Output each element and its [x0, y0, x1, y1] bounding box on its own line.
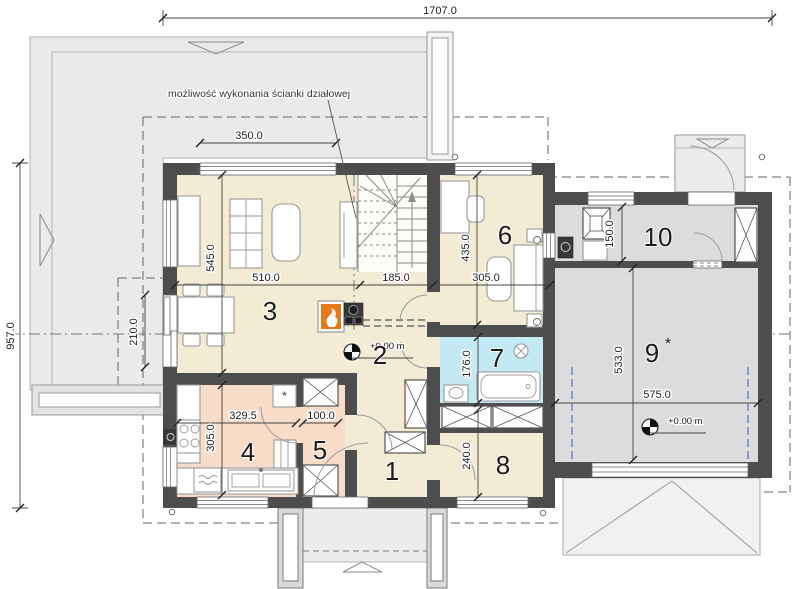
window-living-top [200, 163, 336, 175]
tall-cabinet [274, 440, 296, 468]
room-label-6: 6 [498, 220, 512, 250]
stove-icon [344, 303, 363, 325]
boiler-icon [558, 237, 573, 258]
freezer-symbol: * [282, 389, 287, 403]
window-bedroom-right [543, 233, 555, 258]
entrance-porch [278, 508, 447, 588]
window-bedroom-top [455, 163, 532, 175]
dim-pantry-width: 100.0 [307, 410, 335, 422]
door-gap-utility-garage [693, 261, 722, 268]
terrace-beam [32, 385, 167, 415]
desk-chair [467, 196, 484, 222]
dishwasher-icon [194, 468, 221, 492]
window-room8-bottom [457, 497, 528, 508]
entrance-roof-arrow [343, 562, 382, 572]
window-living-left [163, 200, 177, 267]
dining-chair [207, 334, 224, 346]
dim-living-window: 350.0 [235, 130, 263, 142]
level-text: +0.00 m [668, 416, 703, 427]
entrance-door-opening [312, 497, 368, 508]
door-gap-room8 [427, 445, 440, 480]
socket-icon [534, 319, 541, 326]
dim-room8-depth: 240.0 [461, 442, 473, 470]
floor-plan-drawing: * [0, 0, 800, 589]
wardrobe [405, 380, 427, 428]
kitchen-sink-icon [228, 468, 294, 491]
chimney-shaft [735, 208, 757, 262]
annotation-text: możliwość wykonania ścianki działowej [168, 88, 350, 100]
door-gap-bathroom [427, 337, 440, 367]
terrace-sliding-door [163, 295, 177, 367]
dining-chair [207, 284, 224, 296]
room-label-7: 7 [490, 343, 504, 373]
dining-chair [183, 334, 200, 346]
sofa [230, 199, 262, 268]
dim-bath-depth: 176.0 [461, 350, 473, 378]
dim-total-depth: 957.0 [5, 322, 17, 350]
dim-living-depth: 545.0 [205, 244, 217, 272]
dim-garage-width: 575.0 [643, 389, 671, 401]
dim-hall-width: 185.0 [382, 272, 410, 284]
room-label-2: 2 [373, 340, 387, 370]
garage-door-opening [592, 463, 748, 477]
toilet-icon [514, 344, 528, 358]
bathtub [477, 372, 540, 401]
bed [514, 245, 543, 311]
window-kitchen-left [163, 447, 177, 487]
pantry-shelf [303, 378, 338, 406]
room-label-9: 9 [645, 338, 659, 368]
window-kitchen-bottom [197, 497, 268, 508]
dim-garage-depth: 533.0 [613, 346, 625, 374]
pantry-shelf [303, 465, 338, 496]
room-label-10: 10 [644, 222, 673, 252]
dim-kitchen-width: 329.5 [229, 410, 257, 422]
dim-utility-depth: 150.0 [604, 220, 616, 248]
washbasin [444, 385, 468, 402]
rear-porch [675, 135, 745, 192]
door-gap-bedroom [427, 292, 440, 322]
window-utility-top [588, 192, 634, 205]
wardrobe [442, 406, 491, 428]
coffee-table [272, 204, 300, 261]
room-label-3: 3 [263, 296, 277, 326]
room-label-8: 8 [496, 450, 510, 480]
room-label-9-suffix: * [665, 335, 671, 352]
room-label-1: 1 [385, 456, 399, 486]
socket-icon [534, 237, 541, 244]
dim-bedroom-width: 305.0 [472, 272, 500, 284]
dim-terrace-door: 210.0 [128, 318, 140, 346]
dim-living-width: 510.0 [252, 272, 280, 284]
chimney [427, 32, 453, 160]
dim-bedroom-depth: 435.0 [460, 234, 472, 262]
dim-kitchen-depth: 305.0 [205, 424, 217, 452]
wall-vent [164, 430, 177, 444]
cooktop-icon [177, 420, 200, 453]
dim-total-width: 1707.0 [423, 5, 457, 17]
dining-chair [183, 284, 200, 296]
freezer-icon: * [273, 385, 296, 407]
fireplace-icon [318, 301, 344, 332]
wardrobe [493, 406, 543, 428]
rear-door-opening [688, 192, 735, 205]
room-label-5: 5 [313, 435, 327, 465]
room-label-4: 4 [241, 437, 255, 467]
desk [441, 181, 469, 233]
driveway [563, 478, 760, 555]
dining-table [178, 297, 234, 333]
floor-staircase [358, 175, 427, 272]
chaise-lounge [178, 196, 200, 266]
